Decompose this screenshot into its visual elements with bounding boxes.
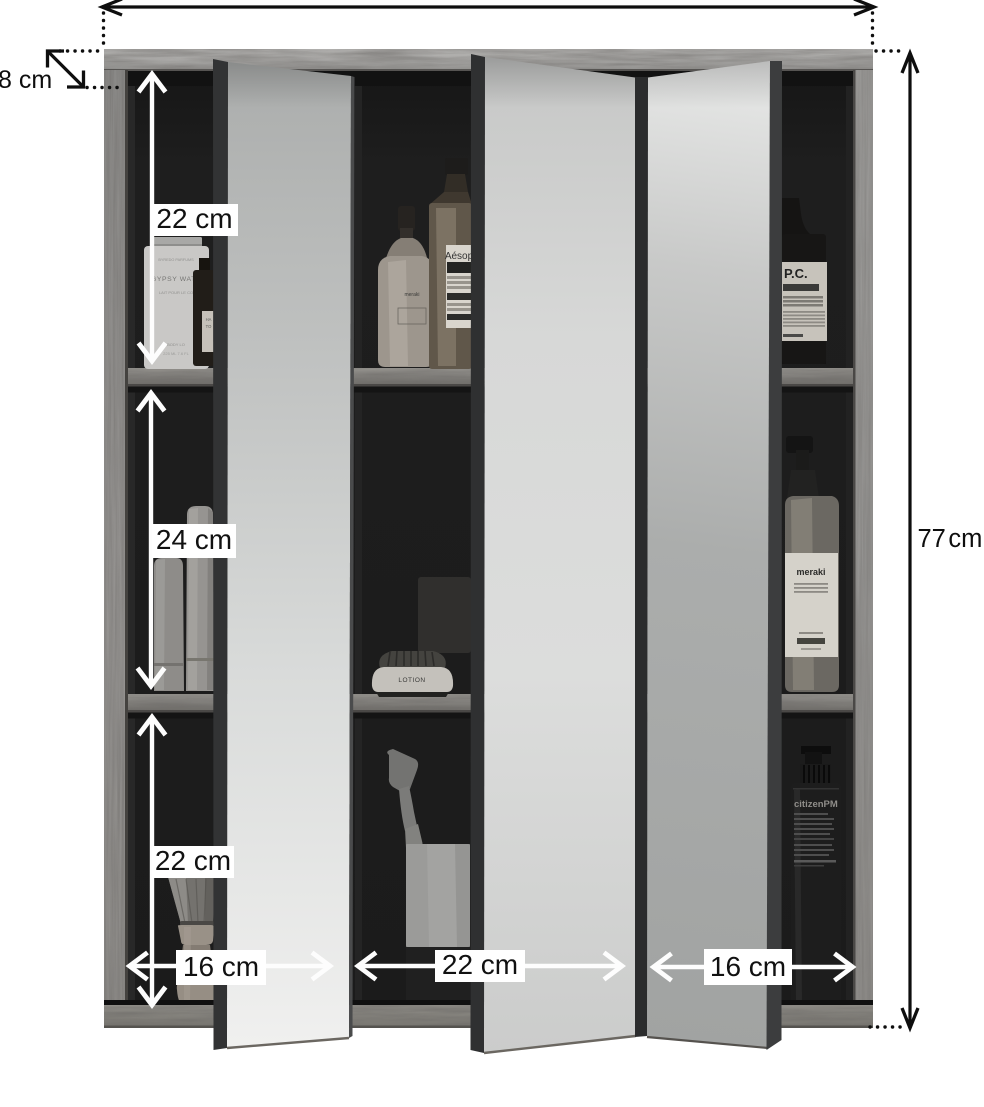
svg-text:LOTION: LOTION [398,677,425,684]
svg-text:16 cm: 16 cm [183,951,259,982]
svg-text:22 cm: 22 cm [442,949,518,980]
svg-text:77cm: 77cm [918,525,983,553]
svg-text:LAIT POUR LE CO: LAIT POUR LE CO [159,290,193,295]
svg-text:225 ML 7.6 FL: 225 ML 7.6 FL [163,351,189,356]
svg-text:22 cm: 22 cm [156,203,232,234]
svg-text:P.C.: P.C. [784,266,808,281]
svg-text:HA: HA [206,317,212,322]
svg-text:24 cm: 24 cm [156,524,232,555]
svg-text:citizenPM: citizenPM [794,799,838,810]
svg-text:16 cm: 16 cm [710,951,786,982]
svg-text:BODY LO: BODY LO [167,342,185,347]
svg-text:BYREDO PARFUMS: BYREDO PARFUMS [158,258,194,262]
svg-text:meraki: meraki [796,567,825,577]
svg-text:22 cm: 22 cm [155,845,231,876]
svg-text:Aésop: Aésop [445,251,474,262]
svg-text:TO: TO [206,324,212,329]
svg-text:8 cm: 8 cm [0,66,52,94]
svg-text:meraki: meraki [404,292,419,298]
